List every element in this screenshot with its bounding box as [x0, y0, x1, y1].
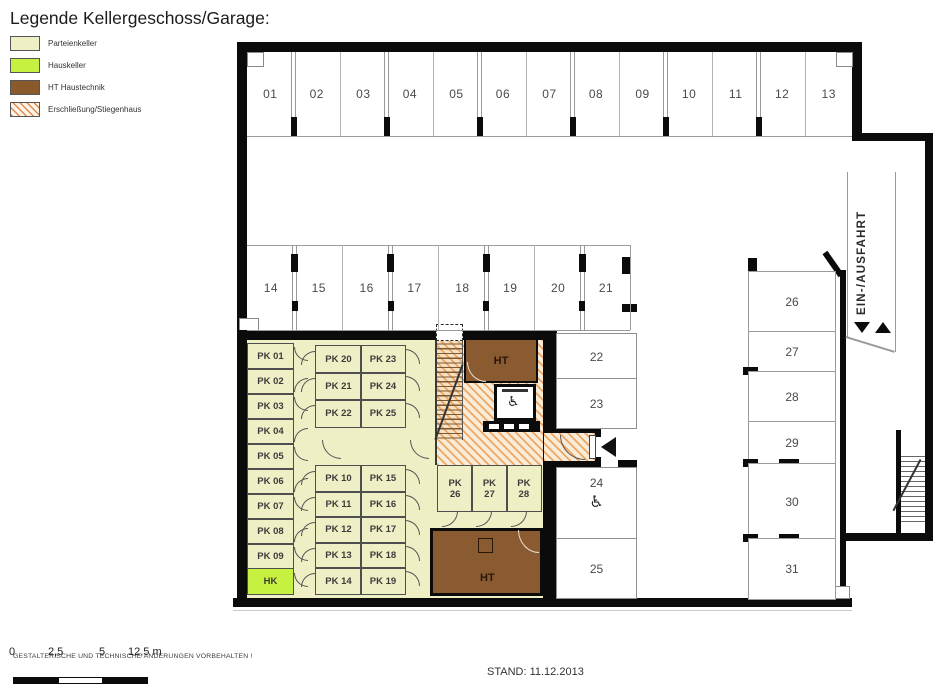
cellar-room-pk-07: PK 07	[247, 493, 294, 520]
cellar-room-pk-08: PK 08	[247, 518, 294, 545]
parking-row-baseline	[247, 136, 852, 137]
cellar-room-pk-04: PK 04	[247, 418, 294, 445]
cellar-room-pk-13: PK 13	[315, 542, 362, 570]
parking-spot-07: 07	[526, 52, 573, 136]
cellar-room-pk-14: PK 14	[315, 567, 362, 595]
scale-bar-segment	[13, 677, 58, 684]
parking-spot-21: 21	[582, 245, 630, 330]
plan-generated-layer: 0102030405060708091011121314151617181920…	[0, 0, 950, 696]
door-arc	[476, 511, 492, 527]
cellar-room-pk-05: PK 05	[247, 443, 294, 470]
parking-spot-14: 14	[247, 245, 295, 330]
parking-spot-06: 06	[480, 52, 527, 136]
wheelchair-icon: ♿	[589, 492, 603, 511]
parking-spot-18: 18	[439, 245, 487, 330]
parking-spot-15: 15	[295, 245, 343, 330]
parking-spot-16: 16	[343, 245, 391, 330]
parking-spot-08: 08	[573, 52, 620, 136]
scale-tick-label: 0	[9, 646, 15, 658]
cellar-room-pk-10: PK 10	[315, 465, 362, 493]
parking-spot-01: 01	[247, 52, 294, 136]
door-arc	[410, 440, 429, 459]
garage-room-30: 30	[748, 463, 836, 540]
room-label-line: 28	[519, 489, 530, 500]
cellar-room-pk-21: PK 21	[315, 372, 362, 401]
parking-spot-20: 20	[534, 245, 582, 330]
door-arc	[405, 520, 420, 535]
cellar-room-pk-20: PK 20	[315, 345, 362, 374]
room-label: 22	[590, 350, 603, 364]
door-arc	[294, 428, 308, 442]
scale-bar-segment	[58, 677, 103, 684]
garage-room-25: 25	[556, 538, 637, 599]
room-label-line: 26	[450, 489, 461, 500]
cellar-room-pk-23: PK 23	[360, 345, 406, 374]
door-arc	[322, 440, 341, 459]
scale-tick-label: 2,5	[48, 646, 63, 658]
garage-room-27: 27	[748, 331, 836, 373]
parking-spot-04: 04	[387, 52, 434, 136]
stand-date: STAND: 11.12.2013	[487, 666, 584, 678]
scale-tick-label: 12,5 m	[128, 646, 162, 658]
cellar-room-pk-24: PK 24	[360, 372, 406, 401]
cellar-room-pk-15: PK 15	[360, 465, 406, 493]
garage-room-24: 24♿	[556, 467, 637, 540]
parking-spot-17: 17	[391, 245, 439, 330]
parking-spot-19: 19	[486, 245, 534, 330]
room-label: 25	[590, 562, 603, 576]
parking-row-baseline	[247, 330, 630, 331]
cellar-room-pk-06: PK 06	[247, 468, 294, 495]
parking-spot-12: 12	[759, 52, 806, 136]
floor-plan-canvas: Legende Kellergeschoss/Garage: Parteienk…	[0, 0, 950, 696]
cellar-room-pk-17: PK 17	[360, 516, 406, 544]
parking-spot-10: 10	[666, 52, 713, 136]
door-arc	[301, 471, 315, 485]
parking-spot-09: 09	[619, 52, 666, 136]
door-arc	[294, 447, 308, 461]
parking-spot-05: 05	[433, 52, 480, 136]
garage-room-26: 26	[748, 271, 836, 333]
room-label-line: PK	[517, 478, 530, 489]
room-label-line: 27	[484, 489, 495, 500]
cellar-room-pk-03: PK 03	[247, 393, 294, 420]
garage-room-28: 28	[748, 371, 836, 423]
room-label: 24	[590, 476, 603, 490]
door-arc	[405, 469, 420, 484]
parking-row-endline	[630, 245, 631, 330]
door-arc	[442, 511, 458, 527]
garage-room-23: 23	[556, 378, 637, 429]
cellar-room-pk-16: PK 16	[360, 491, 406, 519]
room-label-line: PK	[449, 478, 462, 489]
cellar-room-pk-11: PK 11	[315, 491, 362, 519]
cellar-room-pk-25: PK 25	[360, 399, 406, 428]
door-arc	[405, 349, 420, 364]
room-label-line: PK	[483, 478, 496, 489]
garage-room-31: 31	[748, 538, 836, 600]
door-arc	[405, 376, 420, 391]
door-arc	[405, 571, 420, 586]
garage-room-22: 22	[556, 333, 637, 380]
cellar-room-pk-01: PK 01	[247, 343, 294, 370]
cellar-room-pk-27: PK27	[471, 465, 507, 512]
cellar-room-pk-22: PK 22	[315, 399, 362, 428]
room-label: 23	[590, 397, 603, 411]
cellar-room-pk-09: PK 09	[247, 543, 294, 570]
parking-spot-13: 13	[805, 52, 852, 136]
door-arc	[405, 495, 420, 510]
parking-spot-02: 02	[294, 52, 341, 136]
cellar-room-pk-19: PK 19	[360, 567, 406, 595]
parking-spot-11: 11	[712, 52, 759, 136]
cellar-room-pk-02: PK 02	[247, 368, 294, 395]
cellar-room-hk: HK	[247, 568, 294, 595]
cellar-room-pk-18: PK 18	[360, 542, 406, 570]
door-arc	[405, 546, 420, 561]
cellar-room-pk-26: PK26	[437, 465, 473, 512]
scale-bar-segment	[103, 677, 148, 684]
cellar-room-pk-28: PK28	[506, 465, 542, 512]
door-arc	[511, 511, 527, 527]
cellar-room-pk-12: PK 12	[315, 516, 362, 544]
scale-tick-label: 5	[99, 646, 105, 658]
parking-spot-03: 03	[340, 52, 387, 136]
door-arc	[301, 522, 315, 536]
door-arc	[405, 403, 420, 418]
